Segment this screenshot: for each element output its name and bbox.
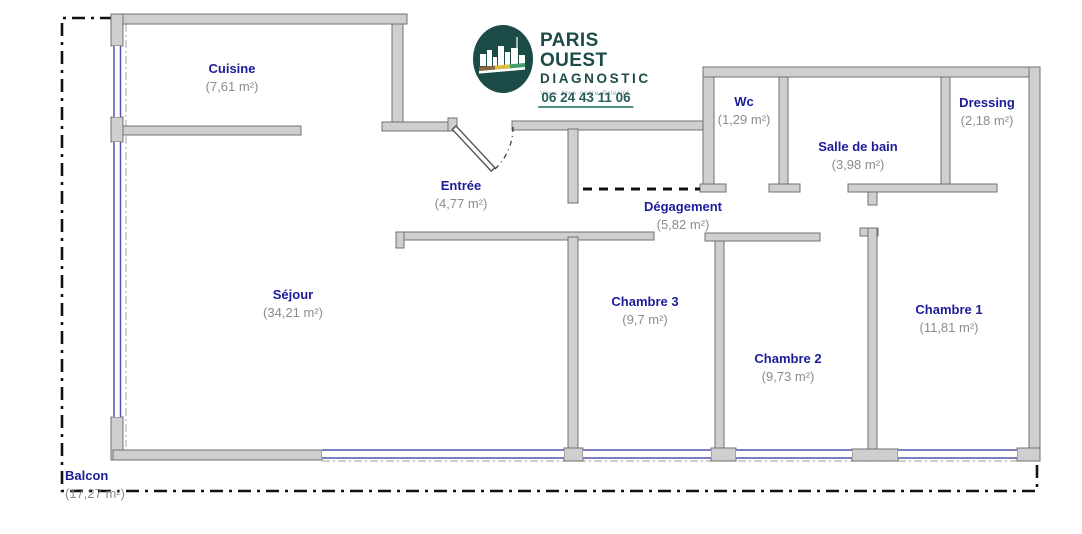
- logo-brand-line1: PARIS OUEST: [540, 31, 670, 71]
- room-name: Dégagement: [644, 198, 722, 216]
- entry-door-icon: [452, 126, 513, 171]
- room-name: Balcon: [65, 467, 125, 485]
- logo-brand-line2: DIAGNOSTIC: [540, 71, 670, 87]
- room-name: Chambre 3: [611, 293, 678, 311]
- room-name: Séjour: [263, 286, 323, 304]
- room-label-chambre-3: Chambre 3 (9,7 m²): [611, 293, 678, 329]
- room-name: Chambre 2: [754, 350, 821, 368]
- room-area: (2,18 m²): [959, 112, 1015, 130]
- room-label-degagement: Dégagement (5,82 m²): [644, 198, 722, 234]
- room-label-dressing: Dressing (2,18 m²): [959, 94, 1015, 130]
- room-area: (9,7 m²): [611, 311, 678, 329]
- room-label-chambre-2: Chambre 2 (9,73 m²): [754, 350, 821, 386]
- room-name: Entrée: [435, 177, 488, 195]
- logo-phone-number: 06 24 43 11 06: [538, 90, 633, 108]
- room-label-wc: Wc (1,29 m²): [718, 93, 771, 129]
- room-label-cuisine: Cuisine (7,61 m²): [206, 60, 259, 96]
- room-area: (11,81 m²): [915, 319, 982, 337]
- room-label-entree: Entrée (4,77 m²): [435, 177, 488, 213]
- room-area: (17,27 m²): [65, 485, 125, 503]
- room-area: (5,82 m²): [644, 216, 722, 234]
- room-name: Dressing: [959, 94, 1015, 112]
- room-name: Cuisine: [206, 60, 259, 78]
- room-label-salle-de-bain: Salle de bain (3,98 m²): [818, 138, 897, 174]
- company-logo: PARIS OUEST DIAGNOSTIC Vous êtes notre P…: [470, 20, 670, 115]
- room-area: (34,21 m²): [263, 304, 323, 322]
- room-label-chambre-1: Chambre 1 (11,81 m²): [915, 301, 982, 337]
- room-name: Salle de bain: [818, 138, 897, 156]
- room-name: Wc: [718, 93, 771, 111]
- room-label-balcon: Balcon (17,27 m²): [65, 467, 125, 503]
- room-area: (7,61 m²): [206, 78, 259, 96]
- floor-plan-canvas: Cuisine (7,61 m²) Entrée (4,77 m²) Wc (1…: [0, 0, 1082, 534]
- room-label-sejour: Séjour (34,21 m²): [263, 286, 323, 322]
- logo-skyline-icon: [472, 24, 534, 94]
- room-area: (3,98 m²): [818, 156, 897, 174]
- room-area: (4,77 m²): [435, 195, 488, 213]
- logo-text: PARIS OUEST DIAGNOSTIC Vous êtes notre P…: [540, 31, 670, 99]
- room-area: (1,29 m²): [718, 111, 771, 129]
- room-area: (9,73 m²): [754, 368, 821, 386]
- room-name: Chambre 1: [915, 301, 982, 319]
